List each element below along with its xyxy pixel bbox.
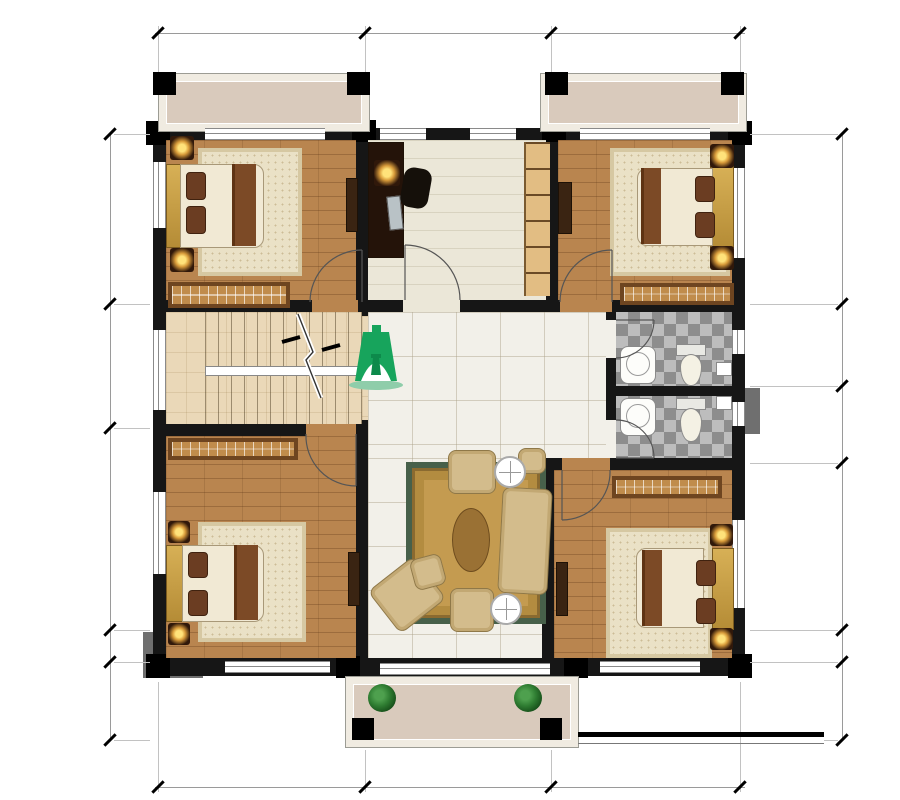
floor-hall-upper (368, 312, 606, 458)
ext-line (114, 428, 150, 429)
bedside-lamp-icon (168, 623, 190, 645)
wardrobe (612, 476, 722, 498)
wall-shelf (556, 562, 568, 616)
pillow (188, 552, 208, 578)
pillow (186, 172, 206, 200)
pillow (695, 212, 715, 238)
ext-line (158, 682, 159, 792)
faucet-fixture (716, 362, 732, 376)
sink (620, 346, 656, 384)
ext-line (114, 662, 150, 663)
dim-line-bottom (155, 787, 745, 788)
plant-icon (514, 684, 542, 712)
ext-line (740, 682, 741, 792)
balcony-floor (166, 81, 362, 124)
plant-icon (368, 684, 396, 712)
door-opening (606, 420, 616, 458)
window (153, 330, 166, 410)
hall-table (452, 508, 490, 572)
column (352, 718, 374, 740)
ceiling-lamp-icon (494, 456, 526, 488)
column (564, 656, 588, 678)
blanket (232, 164, 256, 246)
pillow (696, 560, 716, 586)
window (153, 492, 166, 574)
floor-plan-page (0, 0, 900, 800)
wardrobe-rail (616, 480, 718, 494)
door-opening (306, 424, 356, 436)
door-opening (560, 300, 612, 312)
faucet-fixture (716, 396, 732, 410)
window (153, 162, 166, 228)
bookshelf (524, 142, 550, 296)
bedside-lamp-icon (710, 144, 734, 168)
wall-shelf (558, 182, 572, 234)
ext-line (114, 630, 150, 631)
ext-line (750, 134, 838, 135)
window (470, 128, 516, 140)
window (580, 128, 710, 140)
sink-bowl (626, 404, 650, 428)
sink (620, 398, 656, 436)
door-opening (562, 458, 610, 470)
ext-line (114, 304, 150, 305)
window (732, 330, 745, 354)
dim-line-right (842, 134, 843, 740)
bedside-lamp-icon (710, 628, 733, 650)
blanket (234, 545, 258, 620)
wardrobe (168, 282, 290, 308)
ext-line (750, 386, 838, 387)
title-underline-thin (578, 743, 824, 744)
wardrobe-rail (172, 286, 286, 304)
armchair (448, 450, 496, 494)
door-opening (606, 320, 616, 358)
sink-bowl (626, 352, 650, 376)
ext-line (750, 630, 838, 631)
pillow (695, 176, 715, 202)
dim-line-left (110, 134, 111, 740)
title-underline-thick (578, 732, 824, 737)
bedside-lamp-icon (710, 524, 733, 546)
wardrobe-rail (172, 442, 294, 456)
armchair (450, 588, 494, 632)
ext-line (824, 740, 838, 741)
ext-line (750, 463, 838, 464)
dim-line-top (155, 33, 745, 34)
bedside-lamp-icon (170, 248, 194, 272)
blanket (642, 550, 662, 626)
bedside-lamp-icon (168, 521, 190, 543)
bedside-lamp-icon (710, 246, 734, 270)
balcony-top-right (540, 73, 747, 132)
pillow (186, 206, 206, 234)
column (336, 656, 360, 678)
door-opening (403, 300, 460, 312)
bedside-lamp-icon (170, 136, 194, 160)
column (540, 718, 562, 740)
ext-line (750, 304, 838, 305)
window (225, 661, 330, 673)
window (205, 128, 325, 140)
ext-line (114, 740, 150, 741)
balcony-floor (548, 81, 739, 124)
balcony-top-left (158, 73, 370, 132)
window (732, 402, 745, 426)
window (600, 661, 700, 673)
sofa (497, 487, 552, 595)
stair-handrail (205, 366, 361, 376)
wall-shelf (348, 552, 360, 606)
ceiling-lamp-icon (490, 593, 522, 625)
column (545, 72, 568, 95)
column (721, 72, 744, 95)
pillow (696, 598, 716, 624)
wardrobe (168, 438, 298, 460)
ext-line (750, 662, 838, 663)
door-opening (312, 300, 358, 312)
wardrobe (620, 283, 734, 305)
wall-shelf (346, 178, 358, 232)
balcony-door (380, 663, 550, 675)
desk-lamp-icon (374, 160, 400, 186)
wardrobe-rail (624, 287, 730, 301)
blanket (641, 168, 661, 244)
pillow (188, 590, 208, 616)
column (347, 72, 370, 95)
window (380, 128, 426, 140)
ext-line (114, 134, 150, 135)
column (153, 72, 176, 95)
